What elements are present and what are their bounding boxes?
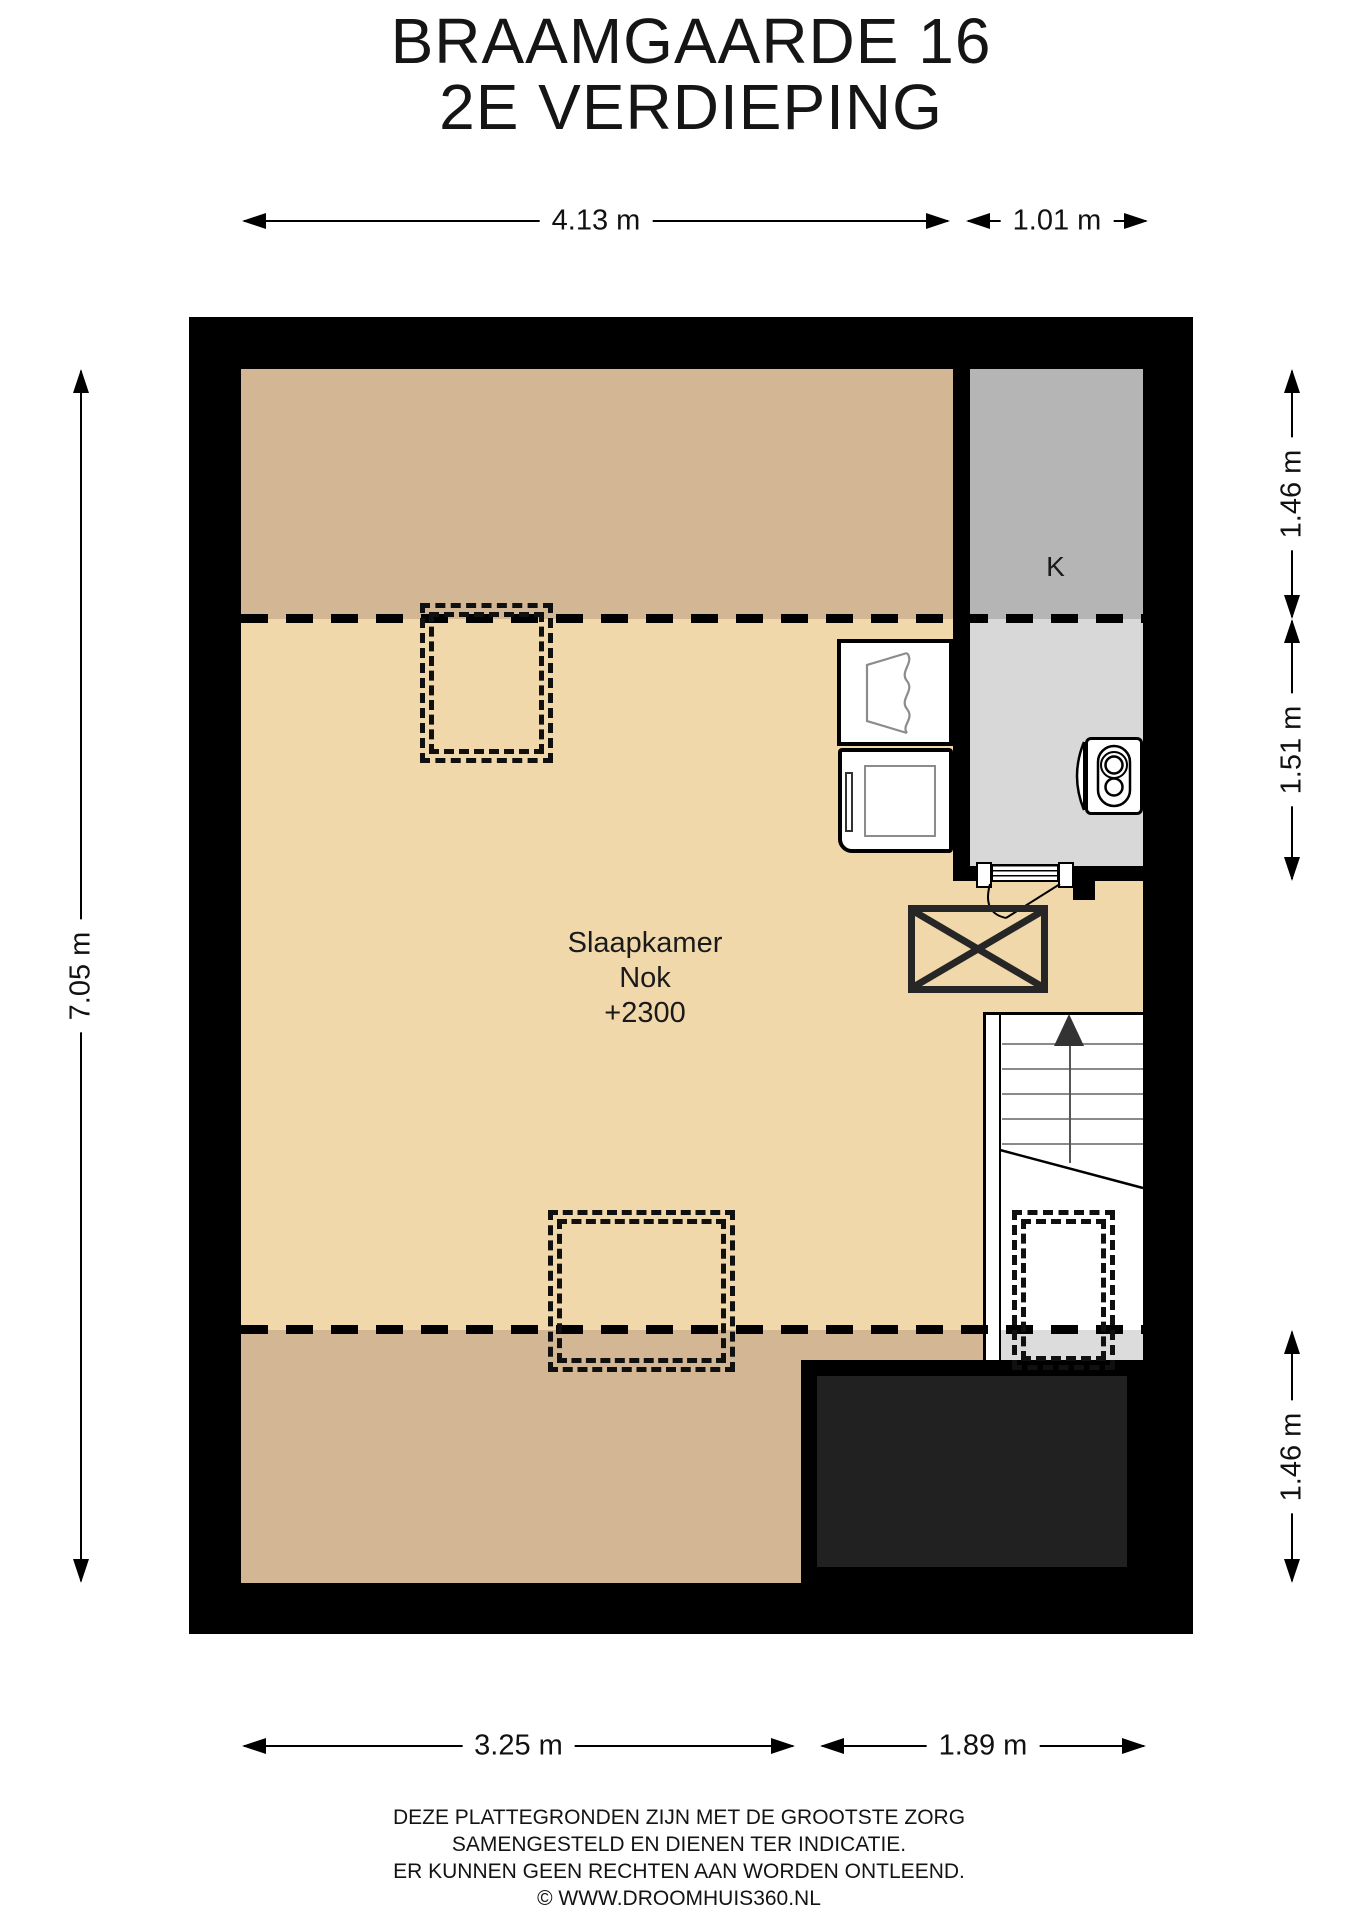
disclaimer-line: SAMENGESTELD EN DIENEN TER INDICATIE. [0,1831,1358,1858]
disclaimer: DEZE PLATTEGRONDEN ZIJN MET DE GROOTSTE … [0,1804,1358,1912]
arrow-up-icon [1284,369,1300,393]
arrow-down-icon [1284,595,1300,619]
arrow-up-icon [73,369,89,393]
wardrobe-cabinet [837,639,953,746]
roof-void-area [801,1360,1143,1583]
bedroom-floor-low-ceiling-top [241,369,953,619]
skylight-dashed-outline-2 [548,1210,735,1372]
dimension-bottom-main: 3.25 m [242,1729,795,1763]
arrow-up-icon [1284,619,1300,643]
dimension-label: 1.51 m [1276,694,1309,807]
arrow-up-icon [1284,1330,1300,1354]
floor-plan-page: BRAAMGAARDE 16 2E VERDIEPING 4.13 m 1.01… [0,0,1358,1920]
boiler-icon [1088,740,1140,812]
void-hatch-crossed-box [908,905,1048,993]
dimension-bottom-right: 1.89 m [820,1729,1146,1763]
ridge-label: Nok [445,961,845,996]
arrow-left-icon [242,1738,266,1754]
dimension-label: 1.89 m [927,1730,1040,1763]
arrow-right-icon [926,213,950,229]
washing-machine-drum [864,765,936,837]
door-leaf [992,864,1058,882]
arrow-down-icon [1284,1559,1300,1583]
arrow-down-icon [1284,857,1300,881]
dimension-right-top: 1.46 m [1275,369,1309,619]
arrow-left-icon [966,213,990,229]
dimension-label: 1.01 m [1001,205,1114,238]
dimension-left: 7.05 m [64,369,98,1583]
dimension-right-bottom: 1.46 m [1275,1330,1309,1583]
roof-void-inner [817,1376,1127,1567]
dimension-top-main: 4.13 m [242,204,950,238]
arrow-right-icon [1124,213,1148,229]
title-line-2: 2E VERDIEPING [189,74,1193,140]
dimension-label: 4.13 m [540,205,653,238]
dimension-label: 1.46 m [1276,1400,1309,1513]
dimension-label: 3.25 m [462,1730,575,1763]
arrow-left-icon [242,213,266,229]
boiler [1085,737,1143,815]
disclaimer-line: ER KUNNEN GEEN RECHTEN AAN WORDEN ONTLEE… [0,1858,1358,1885]
copyright-line: © WWW.DROOMHUIS360.NL [0,1885,1358,1912]
dimension-label: 7.05 m [65,920,98,1033]
skylight-dashed-outline-1 [420,603,553,763]
closet-label: K [1008,551,1103,583]
roof-knee-line-top [241,614,1143,623]
page-title: BRAAMGAARDE 16 2E VERDIEPING [189,8,1193,140]
hanging-clothes-icon [841,643,949,742]
disclaimer-line: DEZE PLATTEGRONDEN ZIJN MET DE GROOTSTE … [0,1804,1358,1831]
title-line-1: BRAAMGAARDE 16 [189,8,1193,74]
dimension-top-right: 1.01 m [966,204,1148,238]
stair-cut-line [990,1144,1145,1194]
closet-left-wall [953,369,970,881]
stair-treads [1002,1043,1143,1147]
arrow-left-icon [820,1738,844,1754]
room-name: Slaapkamer [445,926,845,961]
stair-up-arrow-icon [1054,1014,1084,1046]
arrow-right-icon [771,1738,795,1754]
washing-machine-door-hinge [845,772,853,832]
washing-machine [838,748,953,853]
arrow-down-icon [73,1559,89,1583]
dimension-label: 1.46 m [1276,438,1309,551]
skylight-dashed-outline-3 [1012,1210,1115,1370]
ridge-height: +2300 [445,996,845,1031]
dimension-right-middle: 1.51 m [1275,619,1309,881]
arrow-right-icon [1122,1738,1146,1754]
cross-icon [915,912,1041,986]
bedroom-label: Slaapkamer Nok +2300 [445,926,845,1031]
